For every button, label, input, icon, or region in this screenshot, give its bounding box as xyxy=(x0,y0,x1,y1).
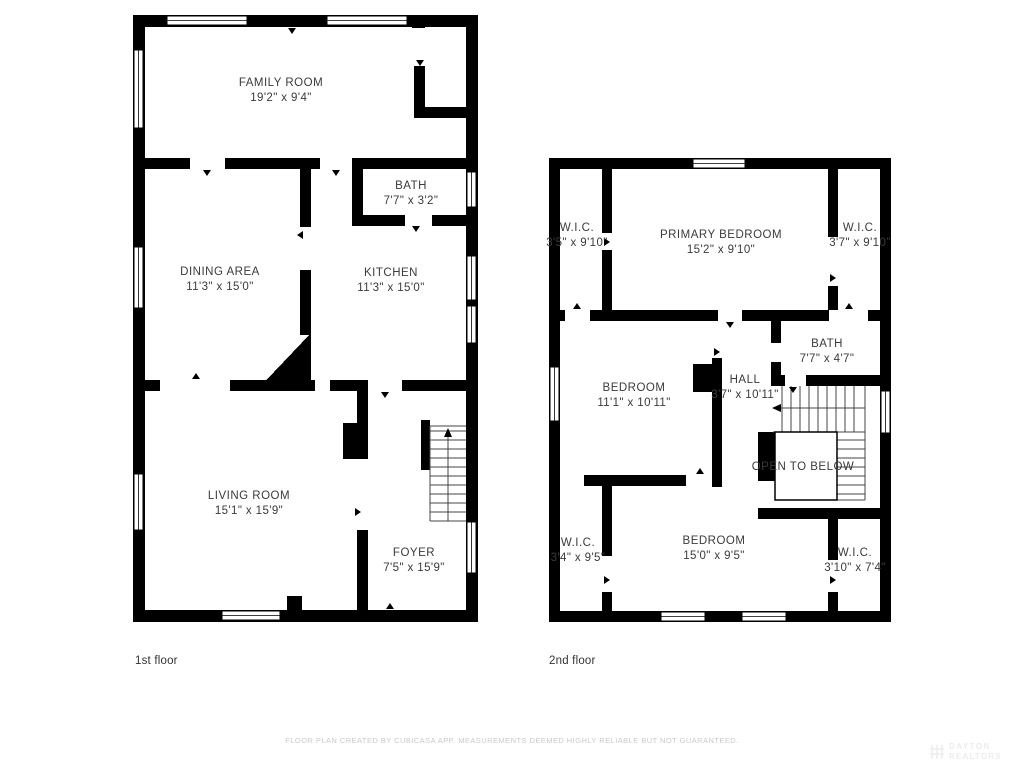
room-dims: 7'5" x 15'9" xyxy=(383,561,444,576)
room-name: FOYER xyxy=(383,546,444,561)
room-dims: 3'7" x 9'10" xyxy=(829,236,890,251)
room-label-foyer: FOYER 7'5" x 15'9" xyxy=(383,546,444,575)
room-label-bedroom-mid: BEDROOM 11'1" x 10'11" xyxy=(597,381,670,410)
realtors-watermark: DAYTON REALTORS xyxy=(929,742,1002,762)
room-label-dining-area: DINING AREA 11'3" x 15'0" xyxy=(180,265,260,294)
stairs-up-arrow xyxy=(444,428,452,437)
chimney-2f xyxy=(693,364,712,392)
watermark-line-2: REALTORS xyxy=(949,752,1002,762)
room-name: BEDROOM xyxy=(683,534,746,549)
room-label-bedroom-bottom: BEDROOM 15'0" x 9'5" xyxy=(683,534,746,563)
stairs-down-arrow xyxy=(772,404,781,412)
room-label-open-to-below: OPEN TO BELOW xyxy=(752,460,855,475)
room-dims: 11'1" x 10'11" xyxy=(597,396,670,411)
room-label-bath-1f: BATH 7'7" x 3'2" xyxy=(384,179,439,208)
room-dims: 15'1" x 15'9" xyxy=(208,504,290,519)
room-dims: 15'0" x 9'5" xyxy=(683,549,746,564)
room-dims: 3'5" x 9'10" xyxy=(546,236,607,251)
room-name: BATH xyxy=(800,337,855,352)
room-label-primary-bedroom: PRIMARY BEDROOM 15'2" x 9'10" xyxy=(660,228,782,257)
room-name: HALL xyxy=(711,373,778,388)
realtors-logo-icon xyxy=(929,744,945,760)
first-floor-plan xyxy=(133,15,478,622)
room-name: W.I.C. xyxy=(824,546,885,561)
room-dims: 3'10" x 7'4" xyxy=(824,561,885,576)
room-dims: 7'7" x 4'7" xyxy=(800,352,855,367)
stairs-first-floor xyxy=(430,426,466,521)
room-name: OPEN TO BELOW xyxy=(752,460,855,475)
footer-disclaimer: FLOOR PLAN CREATED BY CUBICASA APP. MEAS… xyxy=(0,736,1024,745)
room-label-living-room: LIVING ROOM 15'1" x 15'9" xyxy=(208,489,290,518)
room-dims: 11'3" x 15'0" xyxy=(357,281,424,296)
room-name: W.I.C. xyxy=(551,536,606,551)
room-label-wic-top-right: W.I.C. 3'7" x 9'10" xyxy=(829,221,890,250)
chimney xyxy=(343,423,368,459)
room-dims: 15'2" x 9'10" xyxy=(660,243,782,258)
room-label-wic-bottom-right: W.I.C. 3'10" x 7'4" xyxy=(824,546,885,575)
room-label-bath-2f: BATH 7'7" x 4'7" xyxy=(800,337,855,366)
room-name: BEDROOM xyxy=(597,381,670,396)
caption-first-floor: 1st floor xyxy=(135,655,178,667)
room-dims: 7'7" x 3'2" xyxy=(384,194,439,209)
watermark-text: DAYTON REALTORS xyxy=(949,742,1002,762)
floor-plan-page: { "floor1": { "caption": "1st floor", "r… xyxy=(0,0,1024,768)
room-dims: 19'2" x 9'4" xyxy=(239,91,323,106)
room-label-hall: HALL 3'7" x 10'11" xyxy=(711,373,778,402)
floor-plan-canvas xyxy=(0,0,1024,768)
room-name: KITCHEN xyxy=(357,266,424,281)
room-label-family-room: FAMILY ROOM 19'2" x 9'4" xyxy=(239,76,323,105)
room-name: PRIMARY BEDROOM xyxy=(660,228,782,243)
room-dims: 3'4" x 9'5" xyxy=(551,551,606,566)
first-floor-walls xyxy=(133,15,478,622)
room-label-kitchen: KITCHEN 11'3" x 15'0" xyxy=(357,266,424,295)
room-dims: 3'7" x 10'11" xyxy=(711,388,778,403)
room-dims: 11'3" x 15'0" xyxy=(180,280,260,295)
room-name: W.I.C. xyxy=(829,221,890,236)
room-name: FAMILY ROOM xyxy=(239,76,323,91)
room-name: LIVING ROOM xyxy=(208,489,290,504)
room-name: W.I.C. xyxy=(546,221,607,236)
room-label-wic-bottom-left: W.I.C. 3'4" x 9'5" xyxy=(551,536,606,565)
watermark-line-1: DAYTON xyxy=(949,742,1002,752)
caption-second-floor: 2nd floor xyxy=(549,655,596,667)
room-label-wic-top-left: W.I.C. 3'5" x 9'10" xyxy=(546,221,607,250)
room-name: DINING AREA xyxy=(180,265,260,280)
room-name: BATH xyxy=(384,179,439,194)
